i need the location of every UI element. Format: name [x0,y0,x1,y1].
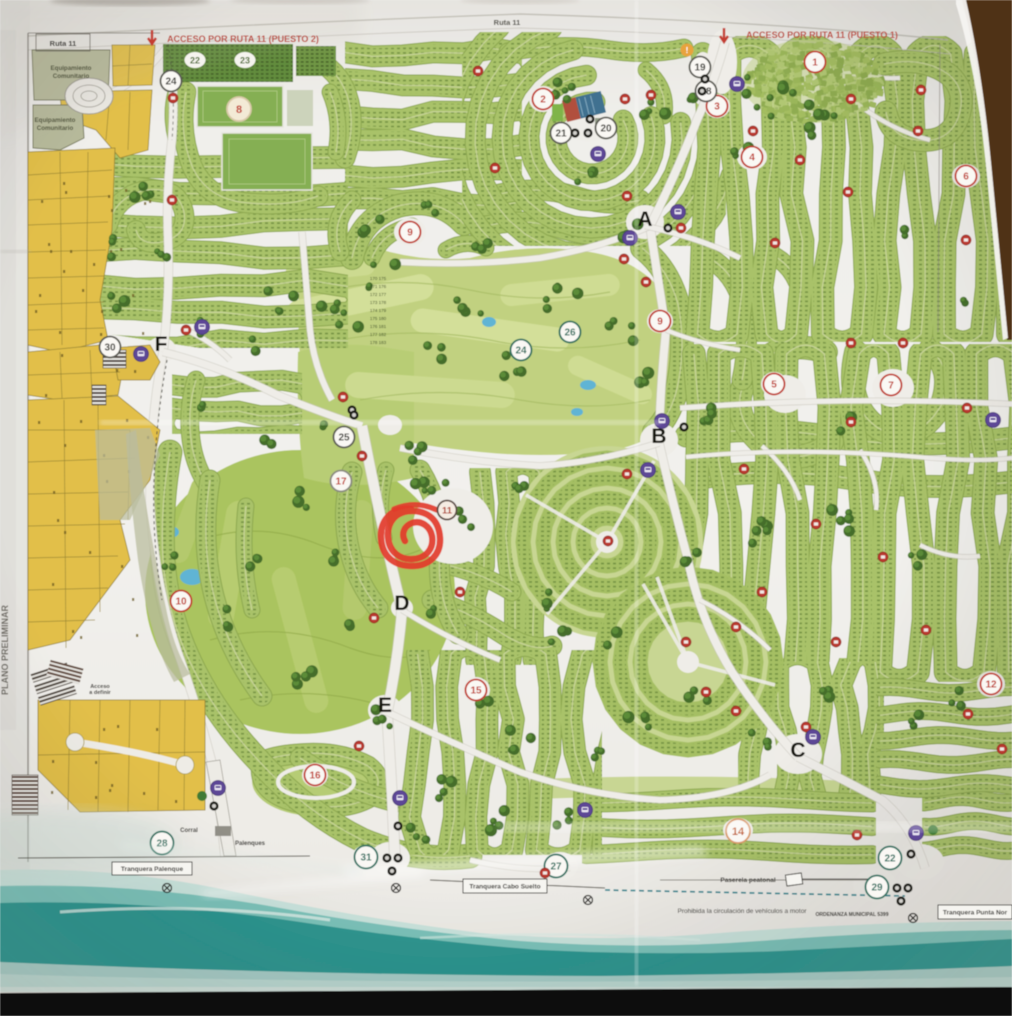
svg-text:Tranquera Palenque: Tranquera Palenque [121,866,184,873]
svg-text:1: 1 [812,58,818,69]
svg-text:Comunitario: Comunitario [37,125,74,132]
svg-text:F: F [155,333,168,356]
svg-text:21: 21 [555,129,567,140]
svg-text:Prohibida la circulación de ve: Prohibida la circulación de vehículos a … [678,908,808,915]
svg-text:22: 22 [190,56,200,66]
svg-text:15: 15 [470,686,482,697]
svg-text:5: 5 [771,380,777,391]
svg-text:Equipamiento: Equipamiento [51,65,92,72]
svg-text:ORDENANZA MUNICIPAL 5399: ORDENANZA MUNICIPAL 5399 [816,912,889,918]
svg-text:7: 7 [888,381,894,392]
svg-text:176 181: 176 181 [370,324,387,329]
svg-text:25: 25 [338,433,350,444]
svg-text:9: 9 [407,228,413,239]
svg-text:174 179: 174 179 [370,308,387,313]
svg-text:16: 16 [309,771,321,782]
svg-text:3: 3 [714,102,720,113]
svg-text:Ruta 11: Ruta 11 [50,39,77,48]
svg-text:24: 24 [515,346,527,357]
svg-text:8: 8 [236,104,242,116]
svg-text:!: ! [686,46,689,55]
svg-text:Equipamiento: Equipamiento [35,117,76,124]
svg-text:23: 23 [240,56,250,66]
svg-text:B: B [651,425,666,448]
svg-text:22: 22 [884,854,896,865]
svg-text:19: 19 [694,63,706,74]
svg-text:170 175: 170 175 [370,276,387,281]
svg-text:6: 6 [963,172,969,183]
svg-text:20: 20 [600,124,612,135]
svg-text:Tranquera Cabo Suelto: Tranquera Cabo Suelto [469,883,540,890]
svg-text:ACCESO POR RUTA 11 (PUESTO 1): ACCESO POR RUTA 11 (PUESTO 1) [746,30,898,40]
svg-text:E: E [378,694,392,717]
svg-text:C: C [790,739,805,762]
svg-text:171 176: 171 176 [370,284,387,289]
svg-text:2: 2 [540,95,546,106]
svg-text:Corral: Corral [180,828,198,834]
svg-text:Tranquera Punta Nor: Tranquera Punta Nor [943,909,1008,916]
svg-text:Paserela peatonal: Paserela peatonal [720,877,775,884]
svg-text:24: 24 [165,77,177,88]
svg-text:D: D [394,592,409,615]
svg-text:172 177: 172 177 [370,292,387,297]
svg-text:ACCESO POR RUTA 11 (PUESTO 2): ACCESO POR RUTA 11 (PUESTO 2) [167,34,319,44]
svg-text:Comunitario: Comunitario [53,73,90,80]
svg-text:173 178: 173 178 [370,300,387,305]
svg-text:10: 10 [175,597,187,608]
svg-text:26: 26 [564,328,576,339]
svg-text:Palenques: Palenques [235,841,266,847]
svg-text:178 183: 178 183 [370,340,387,345]
svg-text:12: 12 [985,680,997,691]
svg-text:177 182: 177 182 [370,332,387,337]
svg-text:PLANO PRELIMINAR: PLANO PRELIMINAR [0,604,10,695]
svg-text:175 180: 175 180 [370,316,387,321]
svg-text:4: 4 [749,153,755,164]
svg-text:29: 29 [871,883,883,894]
svg-text:31: 31 [360,853,372,864]
svg-text:27: 27 [550,862,562,873]
svg-text:9: 9 [657,317,663,328]
svg-text:a definir: a definir [89,690,111,696]
svg-text:17: 17 [335,477,347,488]
svg-text:A: A [637,208,652,231]
svg-text:11: 11 [442,505,453,516]
svg-text:30: 30 [104,343,116,354]
svg-text:Ruta 11: Ruta 11 [494,18,521,27]
